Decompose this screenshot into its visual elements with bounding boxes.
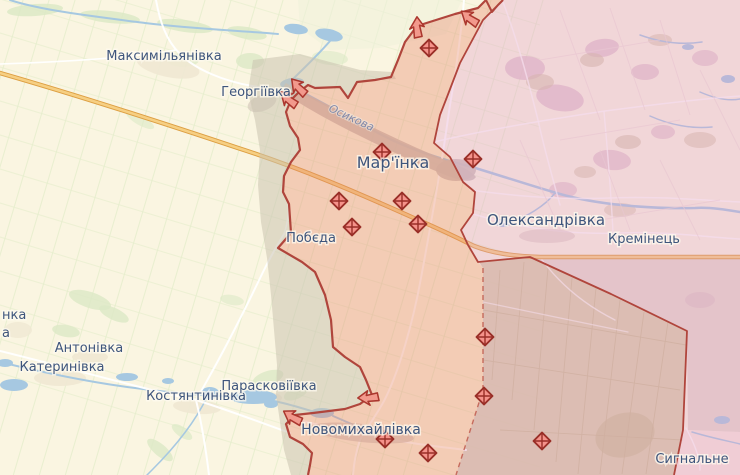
- place-label-marinka: Мар'їнка: [357, 153, 430, 172]
- place-label-oleksandrivka: Олександрівка: [487, 211, 605, 229]
- place-label-pobieda: Побєда: [286, 231, 336, 246]
- place-label-edge-partial-1: нка: [2, 308, 26, 323]
- place-label-katerynivka: Катеринівка: [19, 360, 104, 375]
- place-label-kreminets: Кремінець: [608, 232, 680, 247]
- place-label-edge-partial-2: а: [2, 326, 10, 341]
- place-label-novomykhailivka: Новомихайлівка: [301, 422, 421, 438]
- place-label-syhnalne: Сигнальне: [655, 452, 728, 467]
- place-label-heorhiivka: Георгіївка: [221, 85, 291, 100]
- place-label-maksymilianivka: Максимільянівка: [106, 49, 221, 64]
- occupied-area: [434, 0, 740, 475]
- map-canvas[interactable]: МаксимільянівкаГеоргіївкаМар'їнкаПобєдаО…: [0, 0, 740, 475]
- map-viewport[interactable]: МаксимільянівкаГеоргіївкаМар'їнкаПобєдаО…: [0, 0, 740, 475]
- place-label-paraskoviivka: Парасковіївка: [221, 379, 316, 394]
- place-label-antonivka: Антонівка: [55, 341, 124, 356]
